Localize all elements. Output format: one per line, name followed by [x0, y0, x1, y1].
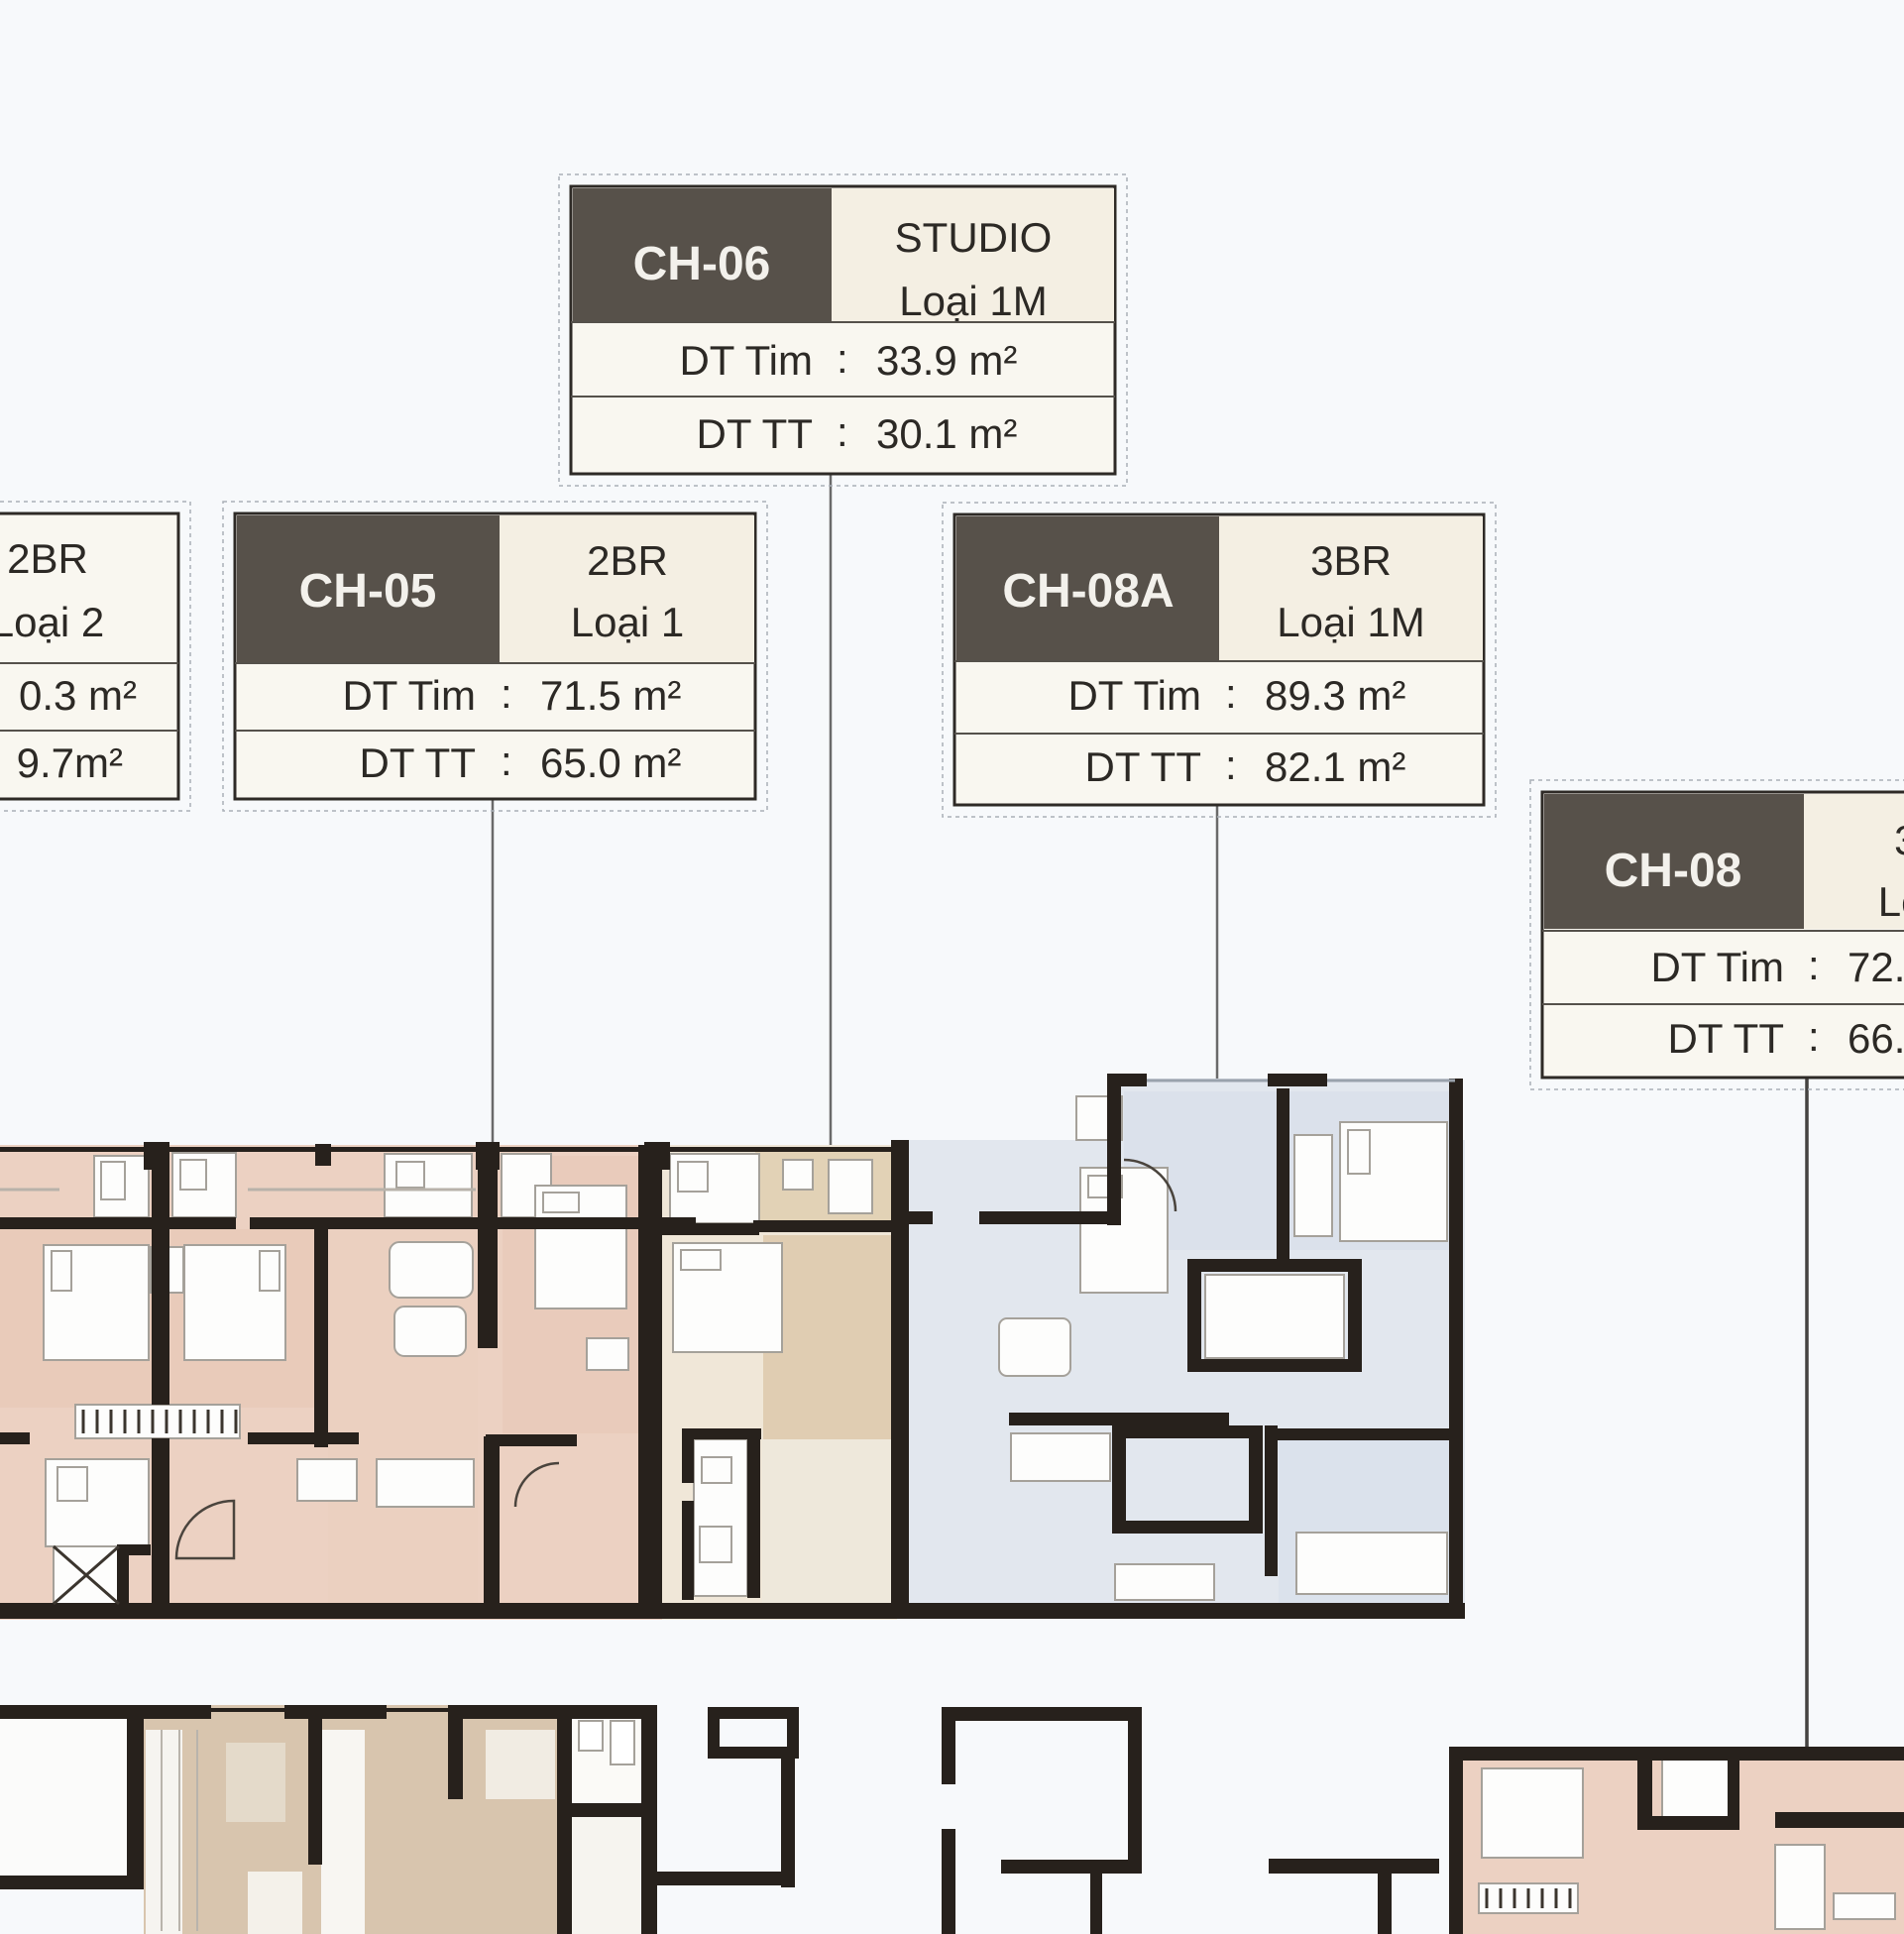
svg-text::: :: [837, 335, 848, 382]
svg-text:65.0 m²: 65.0 m²: [540, 739, 681, 786]
svg-text:72.4 m²: 72.4 m²: [1848, 944, 1904, 990]
svg-text:DT TT: DT TT: [360, 739, 476, 786]
svg-text:66.2 m²: 66.2 m²: [1848, 1015, 1904, 1062]
svg-text::: :: [837, 408, 848, 455]
svg-text:33.9 m²: 33.9 m²: [876, 337, 1017, 384]
svg-text:71.5 m²: 71.5 m²: [540, 672, 681, 719]
svg-text::: :: [1808, 942, 1820, 988]
svg-text:0.3 m²: 0.3 m²: [19, 672, 137, 719]
svg-text:Loại 1M: Loại 1M: [1277, 599, 1424, 645]
svg-text::: :: [501, 670, 512, 717]
svg-text:Loại 1: Loại 1: [571, 599, 684, 645]
svg-text::: :: [501, 738, 512, 784]
svg-text:DT Tim: DT Tim: [679, 337, 813, 384]
svg-text:3BR: 3BR: [1310, 537, 1392, 584]
svg-text:Loại 2: Loại 2: [0, 599, 104, 645]
svg-text:2BR: 2BR: [587, 537, 668, 584]
svg-text:82.1 m²: 82.1 m²: [1265, 743, 1405, 790]
svg-text:3BR: 3BR: [1894, 817, 1904, 863]
svg-text:DT Tim: DT Tim: [1067, 672, 1201, 719]
svg-text:CH-05: CH-05: [299, 565, 437, 618]
svg-text:9.7m²: 9.7m²: [17, 739, 123, 786]
svg-text:STUDIO: STUDIO: [895, 214, 1053, 261]
svg-text:DT TT: DT TT: [1668, 1015, 1784, 1062]
svg-text:DT Tim: DT Tim: [1650, 944, 1784, 990]
svg-text:DT Tim: DT Tim: [342, 672, 476, 719]
svg-text::: :: [1225, 741, 1237, 788]
svg-text::: :: [1225, 670, 1237, 717]
svg-text:Loại 1M: Loại 1M: [899, 278, 1047, 324]
svg-text:CH-06: CH-06: [633, 238, 771, 290]
svg-text:DT TT: DT TT: [1085, 743, 1201, 790]
svg-text::: :: [1808, 1013, 1820, 1060]
svg-text:30.1 m²: 30.1 m²: [876, 410, 1017, 457]
svg-text:89.3 m²: 89.3 m²: [1265, 672, 1405, 719]
svg-text:CH-08A: CH-08A: [1002, 565, 1174, 618]
svg-text:CH-08: CH-08: [1605, 845, 1742, 897]
svg-text:2BR: 2BR: [7, 535, 88, 582]
svg-text:Loại 1: Loại 1: [1878, 878, 1904, 925]
svg-text:DT TT: DT TT: [697, 410, 813, 457]
